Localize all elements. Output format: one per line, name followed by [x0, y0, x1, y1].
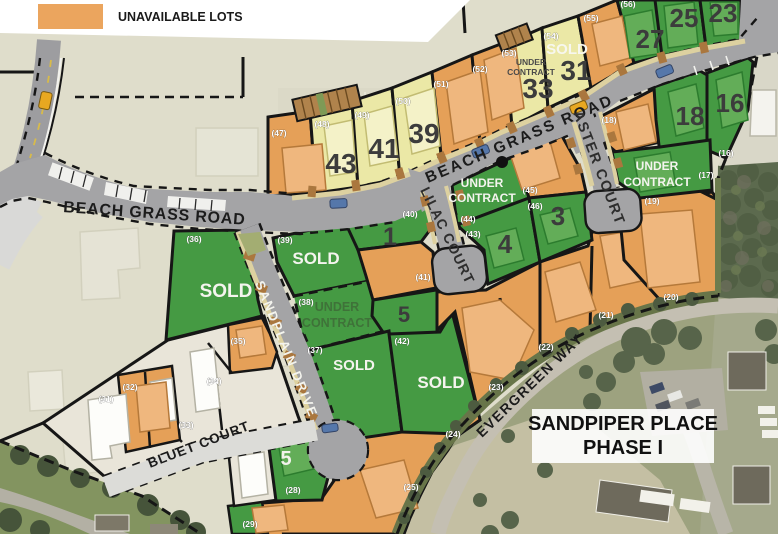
svg-text:1: 1	[383, 223, 397, 251]
svg-text:27: 27	[636, 24, 665, 54]
svg-text:(32): (32)	[122, 382, 137, 392]
svg-text:CONTRACT: CONTRACT	[507, 67, 555, 77]
svg-text:(54): (54)	[543, 31, 558, 41]
svg-text:16: 16	[716, 88, 745, 118]
svg-text:39: 39	[408, 118, 439, 149]
svg-text:(41): (41)	[415, 272, 430, 282]
svg-text:(19): (19)	[644, 196, 659, 206]
svg-text:SANDPIPER PLACE: SANDPIPER PLACE	[528, 413, 718, 435]
svg-text:(20): (20)	[663, 292, 678, 302]
svg-text:(50): (50)	[395, 96, 410, 106]
svg-text:(44): (44)	[460, 214, 475, 224]
svg-text:43: 43	[325, 148, 356, 179]
svg-text:SOLD: SOLD	[292, 249, 339, 268]
svg-text:4: 4	[498, 229, 513, 259]
svg-text:(39): (39)	[277, 235, 292, 245]
svg-text:25: 25	[670, 3, 699, 33]
svg-text:UNDER: UNDER	[461, 176, 504, 190]
svg-text:(53): (53)	[501, 48, 516, 58]
svg-text:SOLD: SOLD	[546, 41, 588, 58]
svg-text:(35): (35)	[230, 336, 245, 346]
svg-text:5: 5	[398, 302, 410, 327]
svg-text:(55): (55)	[583, 13, 598, 23]
svg-text:(21): (21)	[598, 310, 613, 320]
svg-text:(47): (47)	[271, 128, 286, 138]
svg-text:(25): (25)	[403, 482, 418, 492]
svg-text:(38): (38)	[298, 297, 313, 307]
svg-text:(48): (48)	[314, 119, 329, 129]
svg-text:(16): (16)	[718, 148, 733, 158]
svg-text:(36): (36)	[186, 234, 201, 244]
svg-text:UNDER: UNDER	[516, 57, 546, 67]
svg-text:(52): (52)	[472, 64, 487, 74]
svg-text:UNDER: UNDER	[636, 159, 679, 173]
svg-text:CONTRACT: CONTRACT	[623, 175, 691, 189]
svg-text:(24): (24)	[445, 429, 460, 439]
svg-text:SOLD: SOLD	[417, 373, 464, 392]
svg-text:3: 3	[551, 201, 565, 231]
svg-text:(18): (18)	[601, 115, 616, 125]
svg-text:(34): (34)	[206, 376, 221, 386]
svg-text:PHASE I: PHASE I	[583, 437, 663, 459]
svg-text:31: 31	[560, 55, 591, 86]
svg-text:(23): (23)	[488, 382, 503, 392]
svg-text:(33): (33)	[178, 420, 193, 430]
svg-text:18: 18	[676, 101, 705, 131]
svg-text:(28): (28)	[285, 485, 300, 495]
svg-text:33: 33	[522, 73, 553, 104]
svg-text:(46): (46)	[527, 201, 542, 211]
svg-text:SOLD: SOLD	[200, 281, 253, 302]
svg-text:(29): (29)	[242, 519, 257, 529]
svg-text:(17): (17)	[698, 170, 713, 180]
svg-text:(40): (40)	[402, 209, 417, 219]
svg-text:(43): (43)	[465, 229, 480, 239]
svg-text:23: 23	[709, 0, 738, 28]
svg-text:(56): (56)	[620, 0, 635, 9]
svg-text:(51): (51)	[433, 79, 448, 89]
svg-text:(22): (22)	[538, 342, 553, 352]
svg-text:(49): (49)	[354, 110, 369, 120]
svg-text:UNDER: UNDER	[315, 300, 359, 314]
svg-text:CONTRACT: CONTRACT	[448, 191, 516, 205]
svg-text:5: 5	[280, 448, 291, 470]
svg-text:UNAVAILABLE LOTS: UNAVAILABLE LOTS	[118, 10, 243, 24]
svg-text:CONTRACT: CONTRACT	[302, 316, 372, 330]
svg-text:SOLD: SOLD	[333, 357, 375, 374]
svg-text:(45): (45)	[522, 185, 537, 195]
svg-text:(42): (42)	[394, 336, 409, 346]
svg-text:41: 41	[368, 133, 399, 164]
svg-text:(31): (31)	[98, 394, 113, 404]
svg-text:(37): (37)	[307, 345, 322, 355]
